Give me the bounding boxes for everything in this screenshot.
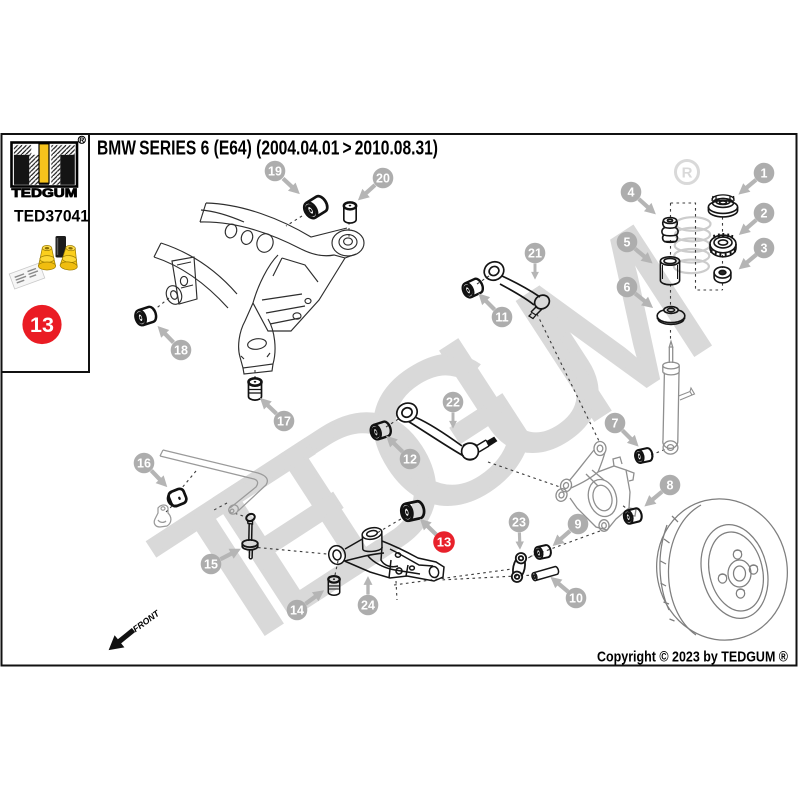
svg-text:14: 14	[290, 603, 304, 617]
svg-text:18: 18	[174, 343, 188, 357]
svg-text:9: 9	[575, 517, 582, 531]
svg-text:15: 15	[204, 557, 218, 571]
svg-text:3: 3	[761, 241, 768, 255]
svg-text:TEDGUM: TEDGUM	[12, 188, 78, 200]
svg-text:13: 13	[30, 313, 54, 337]
svg-text:20: 20	[376, 171, 390, 185]
svg-text:R: R	[682, 165, 693, 182]
svg-text:2: 2	[761, 206, 768, 220]
svg-text:13: 13	[437, 535, 451, 550]
svg-text:17: 17	[277, 414, 291, 428]
svg-text:16: 16	[137, 456, 151, 470]
svg-text:1: 1	[761, 166, 768, 180]
svg-text:23: 23	[512, 515, 526, 529]
svg-text:21: 21	[528, 246, 542, 260]
svg-text:8: 8	[667, 478, 674, 492]
svg-text:19: 19	[268, 164, 282, 178]
svg-text:Copyright © 2023 by TEDGUM ®: Copyright © 2023 by TEDGUM ®	[597, 649, 788, 666]
svg-text:6: 6	[624, 280, 631, 294]
svg-text:7: 7	[612, 416, 619, 430]
svg-text:TED37041: TED37041	[14, 207, 89, 226]
svg-text:10: 10	[569, 591, 583, 605]
svg-text:11: 11	[495, 310, 508, 324]
svg-text:12: 12	[403, 452, 417, 466]
svg-text:4: 4	[628, 185, 635, 199]
svg-text:24: 24	[361, 598, 375, 612]
svg-text:R: R	[79, 137, 84, 144]
svg-text:BMW SERIES 6 (E64) (2004.04.0: BMW SERIES 6 (E64) (2004.04.01 > 2010.08…	[97, 138, 438, 160]
svg-text:5: 5	[624, 235, 631, 249]
svg-text:22: 22	[446, 395, 460, 409]
